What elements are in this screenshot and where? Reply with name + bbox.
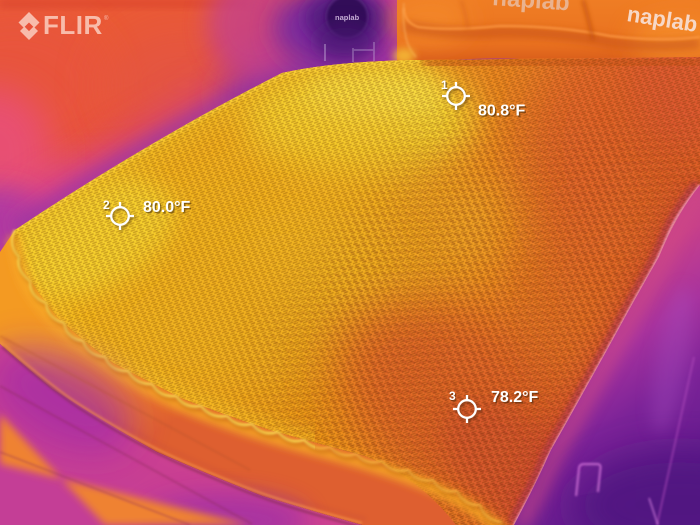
svg-text:3: 3 [449, 389, 456, 403]
svg-text:FLIR: FLIR [43, 10, 103, 40]
svg-text:naplab: naplab [335, 13, 360, 22]
svg-text:2: 2 [103, 198, 110, 212]
svg-text:1: 1 [441, 78, 448, 92]
svg-text:80.8°F: 80.8°F [478, 103, 526, 120]
svg-text:80.0°F: 80.0°F [143, 199, 191, 216]
svg-text:78.2°F: 78.2°F [491, 389, 539, 406]
svg-text:®: ® [104, 15, 109, 22]
